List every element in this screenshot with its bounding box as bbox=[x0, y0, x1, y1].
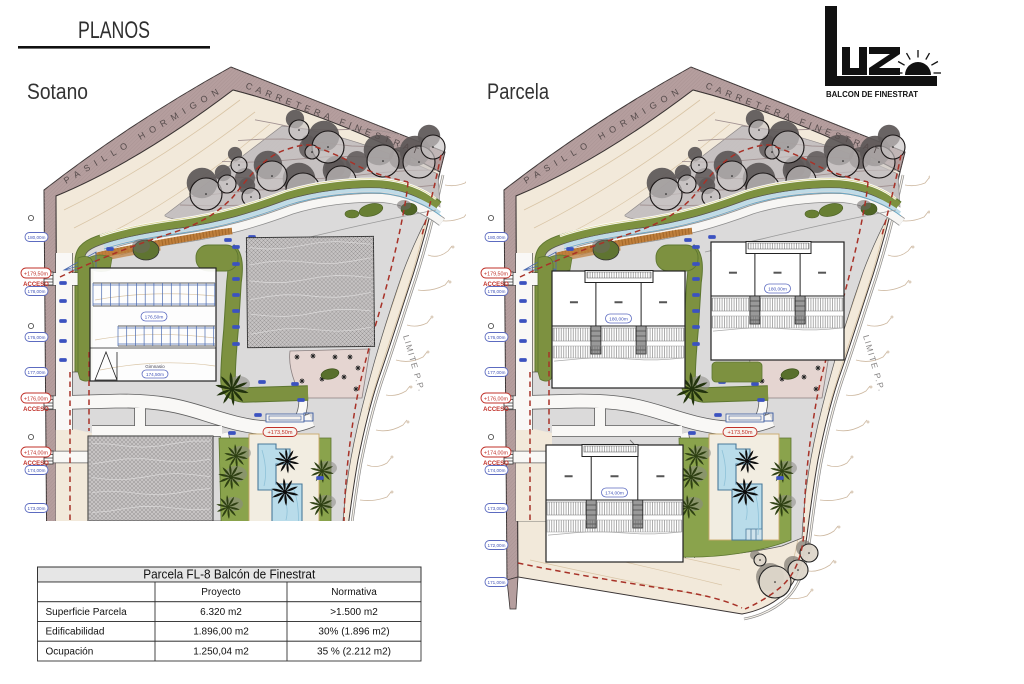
svg-text:Proyecto: Proyecto bbox=[201, 587, 241, 598]
svg-text:Sotano: Sotano bbox=[27, 79, 88, 104]
svg-text:Parcela FL-8 Balcón de Finestr: Parcela FL-8 Balcón de Finestrat bbox=[143, 568, 315, 582]
svg-text:6.320 m2: 6.320 m2 bbox=[200, 607, 242, 618]
svg-text:PLANOS: PLANOS bbox=[78, 17, 150, 44]
svg-text:35 % (2.212 m2): 35 % (2.212 m2) bbox=[317, 646, 391, 657]
svg-text:180,00m: 180,00m bbox=[768, 287, 787, 293]
svg-text:>1.500 m2: >1.500 m2 bbox=[330, 607, 378, 618]
svg-text:Ocupación: Ocupación bbox=[46, 646, 94, 657]
svg-text:Normativa: Normativa bbox=[331, 587, 377, 598]
svg-text:BALCON DE FINESTRAT: BALCON DE FINESTRAT bbox=[826, 90, 918, 99]
svg-text:180,00m: 180,00m bbox=[609, 317, 628, 323]
svg-text:30% (1.896 m2): 30% (1.896 m2) bbox=[318, 627, 389, 638]
svg-text:Superficie Parcela: Superficie Parcela bbox=[46, 607, 128, 618]
svg-text:Parcela: Parcela bbox=[487, 79, 550, 104]
svg-text:176,50m: 176,50m bbox=[145, 315, 164, 321]
svg-text:1.896,00 m2: 1.896,00 m2 bbox=[193, 627, 249, 638]
svg-text:174,50m: 174,50m bbox=[146, 372, 164, 377]
svg-text:1.250,04 m2: 1.250,04 m2 bbox=[193, 646, 249, 657]
svg-text:Edificabilidad: Edificabilidad bbox=[46, 627, 105, 638]
svg-text:Gimnasio: Gimnasio bbox=[145, 364, 165, 369]
svg-text:174,00m: 174,00m bbox=[605, 491, 624, 497]
